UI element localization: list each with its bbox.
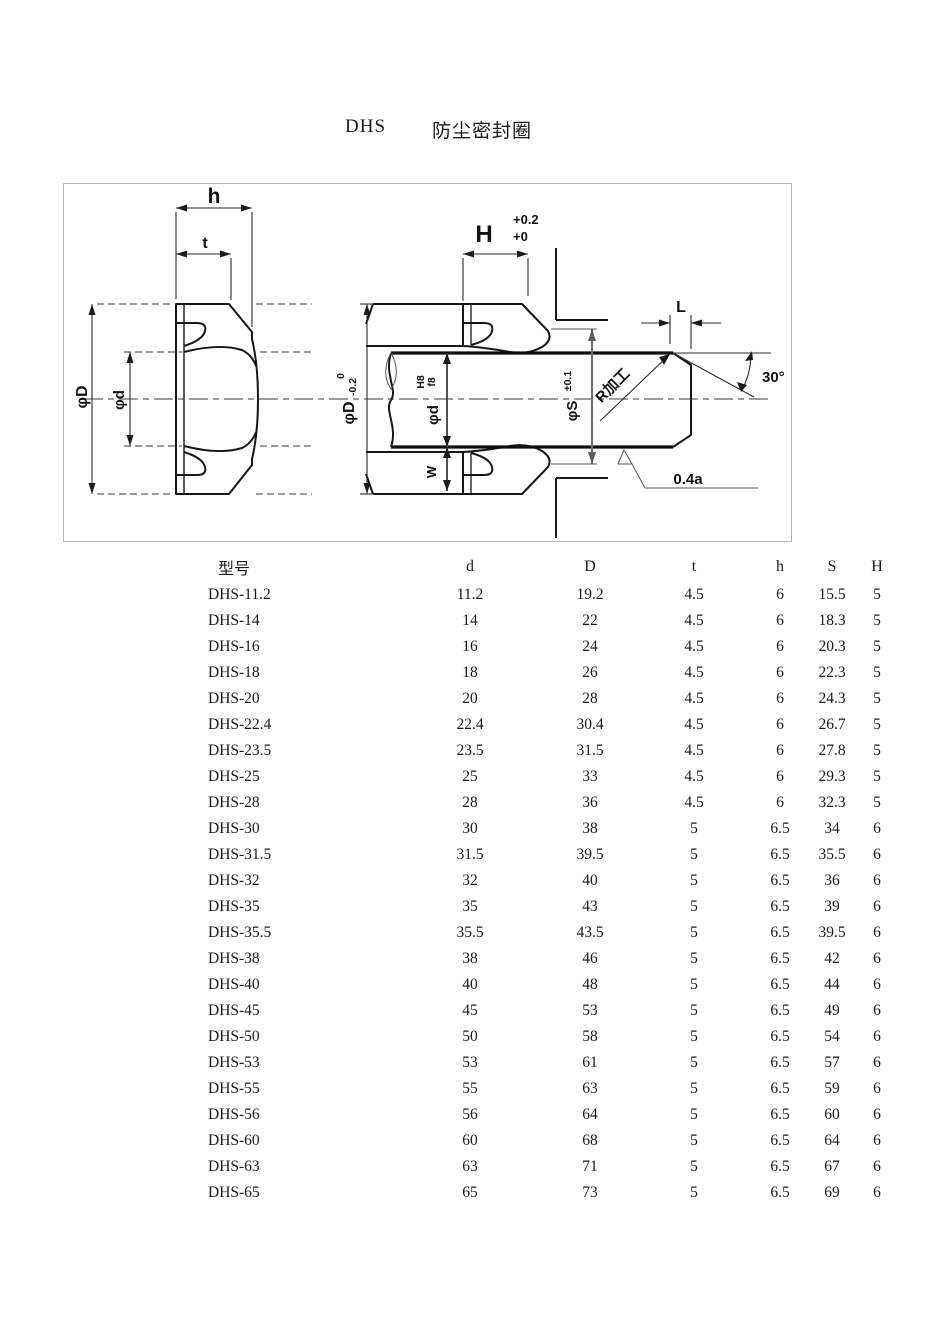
value-cell: 6: [867, 894, 887, 920]
value-cell: 5: [867, 712, 887, 738]
value-cell: 6: [867, 1050, 887, 1076]
dim-label-H-tol-lower: +0: [513, 229, 528, 244]
value-cell: 6.5: [763, 998, 797, 1024]
value-cell: 5: [625, 816, 763, 842]
column-header: 型号: [200, 552, 385, 582]
value-cell: 5: [625, 1102, 763, 1128]
table-row: DHS-45455356.5496: [200, 998, 887, 1024]
value-cell: 56: [385, 1102, 555, 1128]
value-cell: 32: [385, 868, 555, 894]
dim-label-phiS-tol: ±0.1: [562, 371, 574, 392]
dim-label-H-tol-upper: +0.2: [513, 212, 539, 227]
table-row: DHS-50505856.5546: [200, 1024, 887, 1050]
value-cell: 35.5: [797, 842, 867, 868]
value-cell: 6: [763, 686, 797, 712]
value-cell: 6.5: [763, 1180, 797, 1206]
value-cell: 6: [867, 1128, 887, 1154]
value-cell: 11.2: [385, 582, 555, 608]
value-cell: 6: [867, 920, 887, 946]
value-cell: 34: [797, 816, 867, 842]
table-row: DHS-60606856.5646: [200, 1128, 887, 1154]
value-cell: 5: [867, 634, 887, 660]
table-row: DHS-31.531.539.556.535.56: [200, 842, 887, 868]
table-header-row: 型号dDthSH: [200, 552, 887, 582]
table-row: DHS-63637156.5676: [200, 1154, 887, 1180]
column-header: h: [763, 552, 797, 582]
model-cell: DHS-23.5: [200, 738, 385, 764]
table-row: DHS-35.535.543.556.539.56: [200, 920, 887, 946]
model-cell: DHS-56: [200, 1102, 385, 1128]
value-cell: 6.5: [763, 816, 797, 842]
value-cell: 43.5: [555, 920, 625, 946]
value-cell: 6: [867, 1076, 887, 1102]
table-row: DHS-55556356.5596: [200, 1076, 887, 1102]
value-cell: 69: [797, 1180, 867, 1206]
table-row: DHS-30303856.5346: [200, 816, 887, 842]
document-page: DHS 防尘密封圈: [0, 0, 950, 1344]
value-cell: 4.5: [625, 790, 763, 816]
value-cell: 6.5: [763, 894, 797, 920]
model-cell: DHS-40: [200, 972, 385, 998]
value-cell: 5: [625, 946, 763, 972]
model-cell: DHS-32: [200, 868, 385, 894]
right-view: H +0.2 +0 φD 0 -0.2 φd H8 f8: [335, 212, 785, 538]
value-cell: 20.3: [797, 634, 867, 660]
value-cell: 4.5: [625, 634, 763, 660]
value-cell: 55: [385, 1076, 555, 1102]
value-cell: 46: [555, 946, 625, 972]
page-title: DHS 防尘密封圈: [345, 116, 532, 143]
value-cell: 73: [555, 1180, 625, 1206]
model-cell: DHS-16: [200, 634, 385, 660]
value-cell: 6.5: [763, 1024, 797, 1050]
column-header: d: [385, 552, 555, 582]
value-cell: 57: [797, 1050, 867, 1076]
table-row: DHS-56566456.5606: [200, 1102, 887, 1128]
value-cell: 6: [763, 660, 797, 686]
note-r-machining: R加工: [592, 365, 633, 406]
value-cell: 5: [625, 1180, 763, 1206]
value-cell: 6.5: [763, 1076, 797, 1102]
value-cell: 45: [385, 998, 555, 1024]
column-header: t: [625, 552, 763, 582]
value-cell: 5: [625, 920, 763, 946]
table-row: DHS-65657356.5696: [200, 1180, 887, 1206]
model-cell: DHS-35: [200, 894, 385, 920]
value-cell: 6: [867, 972, 887, 998]
value-cell: 5: [867, 660, 887, 686]
value-cell: 31.5: [385, 842, 555, 868]
spec-table-grid: 型号dDthSH DHS-11.211.219.24.5615.55DHS-14…: [200, 552, 887, 1206]
value-cell: 6: [763, 712, 797, 738]
model-cell: DHS-18: [200, 660, 385, 686]
value-cell: 64: [797, 1128, 867, 1154]
dim-label-phiD-tol-lower: -0.2: [347, 378, 359, 396]
model-cell: DHS-11.2: [200, 582, 385, 608]
table-row: DHS-1616244.5620.35: [200, 634, 887, 660]
value-cell: 6.5: [763, 842, 797, 868]
dim-label-phiD-tol-upper: 0: [335, 373, 347, 379]
table-row: DHS-2828364.5632.35: [200, 790, 887, 816]
model-cell: DHS-65: [200, 1180, 385, 1206]
value-cell: 4.5: [625, 686, 763, 712]
value-cell: 30.4: [555, 712, 625, 738]
value-cell: 53: [555, 998, 625, 1024]
model-cell: DHS-22.4: [200, 712, 385, 738]
value-cell: 29.3: [797, 764, 867, 790]
value-cell: 58: [555, 1024, 625, 1050]
value-cell: 65: [385, 1180, 555, 1206]
value-cell: 5: [625, 1128, 763, 1154]
value-cell: 49: [797, 998, 867, 1024]
value-cell: 6: [763, 608, 797, 634]
value-cell: 43: [555, 894, 625, 920]
dim-label-phiS: φS: [564, 401, 581, 422]
table-row: DHS-38384656.5426: [200, 946, 887, 972]
value-cell: 25: [385, 764, 555, 790]
value-cell: 6: [867, 868, 887, 894]
table-row: DHS-1414224.5618.35: [200, 608, 887, 634]
spec-table: 型号dDthSH DHS-11.211.219.24.5615.55DHS-14…: [200, 552, 887, 1206]
technical-drawing: h t φD φd: [63, 183, 792, 542]
value-cell: 4.5: [625, 738, 763, 764]
dim-label-t: t: [202, 235, 208, 252]
value-cell: 40: [385, 972, 555, 998]
model-cell: DHS-25: [200, 764, 385, 790]
model-cell: DHS-53: [200, 1050, 385, 1076]
value-cell: 6: [763, 582, 797, 608]
title-code: DHS: [345, 116, 386, 143]
table-row: DHS-1818264.5622.35: [200, 660, 887, 686]
value-cell: 15.5: [797, 582, 867, 608]
value-cell: 5: [867, 790, 887, 816]
value-cell: 53: [385, 1050, 555, 1076]
value-cell: 36: [797, 868, 867, 894]
value-cell: 24.3: [797, 686, 867, 712]
value-cell: 38: [385, 946, 555, 972]
model-cell: DHS-60: [200, 1128, 385, 1154]
value-cell: 5: [867, 686, 887, 712]
value-cell: 19.2: [555, 582, 625, 608]
value-cell: 28: [385, 790, 555, 816]
model-cell: DHS-30: [200, 816, 385, 842]
table-row: DHS-11.211.219.24.5615.55: [200, 582, 887, 608]
value-cell: 5: [867, 582, 887, 608]
value-cell: 6: [867, 816, 887, 842]
dim-label-phiD-left: φD: [74, 386, 91, 409]
value-cell: 42: [797, 946, 867, 972]
value-cell: 35.5: [385, 920, 555, 946]
value-cell: 5: [625, 1154, 763, 1180]
value-cell: 48: [555, 972, 625, 998]
value-cell: 6: [867, 1180, 887, 1206]
model-cell: DHS-50: [200, 1024, 385, 1050]
value-cell: 35: [385, 894, 555, 920]
value-cell: 40: [555, 868, 625, 894]
value-cell: 38: [555, 816, 625, 842]
value-cell: 60: [385, 1128, 555, 1154]
table-row: DHS-23.523.531.54.5627.85: [200, 738, 887, 764]
value-cell: 33: [555, 764, 625, 790]
value-cell: 26.7: [797, 712, 867, 738]
value-cell: 5: [625, 868, 763, 894]
value-cell: 4.5: [625, 582, 763, 608]
seal-drawing-svg: h t φD φd: [64, 184, 791, 541]
value-cell: 6.5: [763, 946, 797, 972]
value-cell: 22.4: [385, 712, 555, 738]
value-cell: 20: [385, 686, 555, 712]
value-cell: 5: [625, 842, 763, 868]
value-cell: 60: [797, 1102, 867, 1128]
column-header: D: [555, 552, 625, 582]
dim-label-phid-left: φd: [111, 390, 128, 410]
dim-label-h: h: [208, 185, 221, 208]
value-cell: 67: [797, 1154, 867, 1180]
value-cell: 63: [385, 1154, 555, 1180]
value-cell: 6.5: [763, 1154, 797, 1180]
value-cell: 6: [867, 998, 887, 1024]
value-cell: 5: [625, 1024, 763, 1050]
value-cell: 36: [555, 790, 625, 816]
value-cell: 28: [555, 686, 625, 712]
value-cell: 6.5: [763, 868, 797, 894]
table-row: DHS-53536156.5576: [200, 1050, 887, 1076]
dim-label-angle: 30°: [762, 369, 785, 386]
dim-label-W: W: [424, 465, 439, 478]
value-cell: 5: [867, 738, 887, 764]
value-cell: 6: [763, 764, 797, 790]
table-row: DHS-22.422.430.44.5626.75: [200, 712, 887, 738]
value-cell: 5: [625, 894, 763, 920]
value-cell: 6: [867, 1154, 887, 1180]
value-cell: 68: [555, 1128, 625, 1154]
note-roughness: 0.4a: [673, 471, 703, 488]
model-cell: DHS-20: [200, 686, 385, 712]
value-cell: 6.5: [763, 920, 797, 946]
table-row: DHS-35354356.5396: [200, 894, 887, 920]
value-cell: 5: [625, 972, 763, 998]
value-cell: 63: [555, 1076, 625, 1102]
value-cell: 71: [555, 1154, 625, 1180]
dim-label-H: H: [475, 221, 492, 248]
value-cell: 23.5: [385, 738, 555, 764]
model-cell: DHS-55: [200, 1076, 385, 1102]
value-cell: 6: [763, 738, 797, 764]
dim-label-phiD-right: φD: [341, 402, 358, 425]
value-cell: 22.3: [797, 660, 867, 686]
left-view: h t φD φd: [74, 185, 314, 494]
model-cell: DHS-45: [200, 998, 385, 1024]
value-cell: 54: [797, 1024, 867, 1050]
value-cell: 6.5: [763, 972, 797, 998]
value-cell: 5: [625, 998, 763, 1024]
value-cell: 6.5: [763, 1102, 797, 1128]
column-header: H: [867, 552, 887, 582]
value-cell: 16: [385, 634, 555, 660]
value-cell: 59: [797, 1076, 867, 1102]
value-cell: 6: [867, 1024, 887, 1050]
value-cell: 61: [555, 1050, 625, 1076]
model-cell: DHS-31.5: [200, 842, 385, 868]
value-cell: 6.5: [763, 1128, 797, 1154]
value-cell: 44: [797, 972, 867, 998]
value-cell: 30: [385, 816, 555, 842]
value-cell: 39.5: [555, 842, 625, 868]
value-cell: 39: [797, 894, 867, 920]
value-cell: 26: [555, 660, 625, 686]
dim-label-phid-right: φd: [425, 405, 442, 425]
value-cell: 6.5: [763, 1050, 797, 1076]
spec-table-body: DHS-11.211.219.24.5615.55DHS-1414224.561…: [200, 582, 887, 1206]
value-cell: 22: [555, 608, 625, 634]
value-cell: 5: [625, 1050, 763, 1076]
model-cell: DHS-35.5: [200, 920, 385, 946]
table-row: DHS-2525334.5629.35: [200, 764, 887, 790]
table-row: DHS-32324056.5366: [200, 868, 887, 894]
value-cell: 5: [867, 608, 887, 634]
value-cell: 39.5: [797, 920, 867, 946]
value-cell: 14: [385, 608, 555, 634]
value-cell: 4.5: [625, 764, 763, 790]
model-cell: DHS-38: [200, 946, 385, 972]
dim-label-L: L: [676, 299, 686, 316]
table-row: DHS-2020284.5624.35: [200, 686, 887, 712]
table-row: DHS-40404856.5446: [200, 972, 887, 998]
value-cell: 18.3: [797, 608, 867, 634]
dim-label-phid-fit-lower: f8: [426, 377, 438, 386]
value-cell: 4.5: [625, 712, 763, 738]
model-cell: DHS-63: [200, 1154, 385, 1180]
value-cell: 64: [555, 1102, 625, 1128]
value-cell: 5: [625, 1076, 763, 1102]
value-cell: 6: [867, 946, 887, 972]
value-cell: 5: [867, 764, 887, 790]
column-header: S: [797, 552, 867, 582]
value-cell: 18: [385, 660, 555, 686]
value-cell: 6: [867, 842, 887, 868]
value-cell: 50: [385, 1024, 555, 1050]
value-cell: 32.3: [797, 790, 867, 816]
model-cell: DHS-14: [200, 608, 385, 634]
value-cell: 6: [763, 634, 797, 660]
value-cell: 24: [555, 634, 625, 660]
value-cell: 6: [763, 790, 797, 816]
value-cell: 4.5: [625, 660, 763, 686]
model-cell: DHS-28: [200, 790, 385, 816]
value-cell: 27.8: [797, 738, 867, 764]
title-name: 防尘密封圈: [432, 116, 532, 143]
value-cell: 31.5: [555, 738, 625, 764]
value-cell: 4.5: [625, 608, 763, 634]
value-cell: 6: [867, 1102, 887, 1128]
